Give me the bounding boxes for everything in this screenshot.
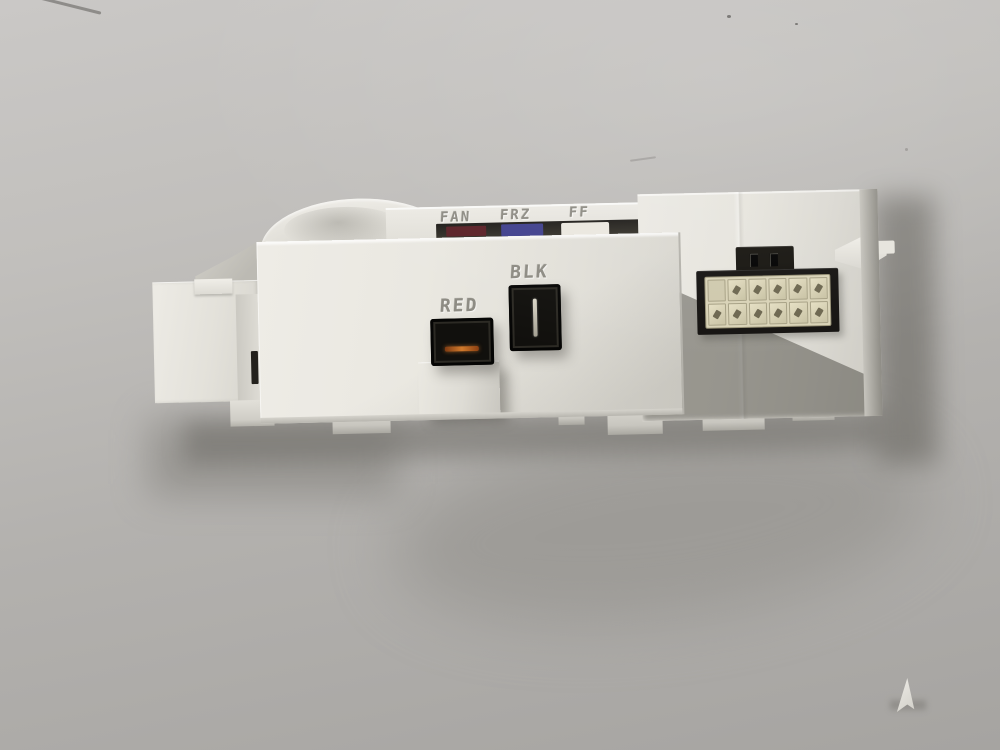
multipin-recess bbox=[696, 268, 839, 335]
connector-pin bbox=[707, 279, 726, 301]
pin-hole bbox=[794, 308, 803, 318]
red-terminal bbox=[445, 346, 479, 352]
pin-hole bbox=[733, 309, 742, 319]
connector-pin bbox=[769, 302, 788, 324]
connector-pin bbox=[810, 301, 829, 323]
bracket-slot bbox=[251, 351, 259, 384]
pin-hole bbox=[814, 307, 823, 317]
main-face-panel: RED BLK bbox=[256, 232, 684, 424]
blk-socket bbox=[508, 284, 561, 351]
socket-pedestal bbox=[418, 360, 500, 417]
connector-pin bbox=[768, 278, 787, 300]
blk-label: BLK bbox=[509, 261, 549, 283]
control-module: FAN FRZ FF bbox=[0, 0, 1000, 750]
fan-connector bbox=[446, 226, 486, 237]
connector-pin bbox=[708, 303, 727, 325]
header-slot bbox=[770, 253, 778, 266]
frz-connector bbox=[501, 223, 543, 236]
red-socket bbox=[430, 318, 494, 366]
connector-pin bbox=[789, 277, 808, 299]
bracket-ledge bbox=[194, 279, 232, 295]
pin-hole bbox=[732, 285, 741, 295]
connector-pin bbox=[789, 301, 808, 323]
red-label: RED bbox=[439, 295, 479, 317]
pin-hole bbox=[773, 284, 782, 294]
pin-hole bbox=[774, 308, 783, 318]
panel-right-edge bbox=[859, 189, 882, 416]
blk-terminal-pin bbox=[533, 299, 538, 337]
pin-hole bbox=[793, 284, 802, 294]
connector-pin bbox=[748, 278, 767, 300]
connector-pin bbox=[749, 302, 768, 324]
pin-hole bbox=[713, 310, 722, 320]
photo-backdrop: FAN FRZ FF bbox=[0, 0, 1000, 750]
pin-hole bbox=[753, 309, 762, 319]
ff-label: FF bbox=[568, 204, 590, 221]
pin-hole bbox=[814, 283, 823, 293]
connector-pin bbox=[728, 303, 747, 325]
header-slot bbox=[750, 254, 758, 267]
multipin-connector bbox=[704, 274, 831, 329]
connector-pin bbox=[728, 279, 747, 301]
connector-pin bbox=[809, 277, 828, 299]
pin-hole bbox=[753, 285, 762, 295]
